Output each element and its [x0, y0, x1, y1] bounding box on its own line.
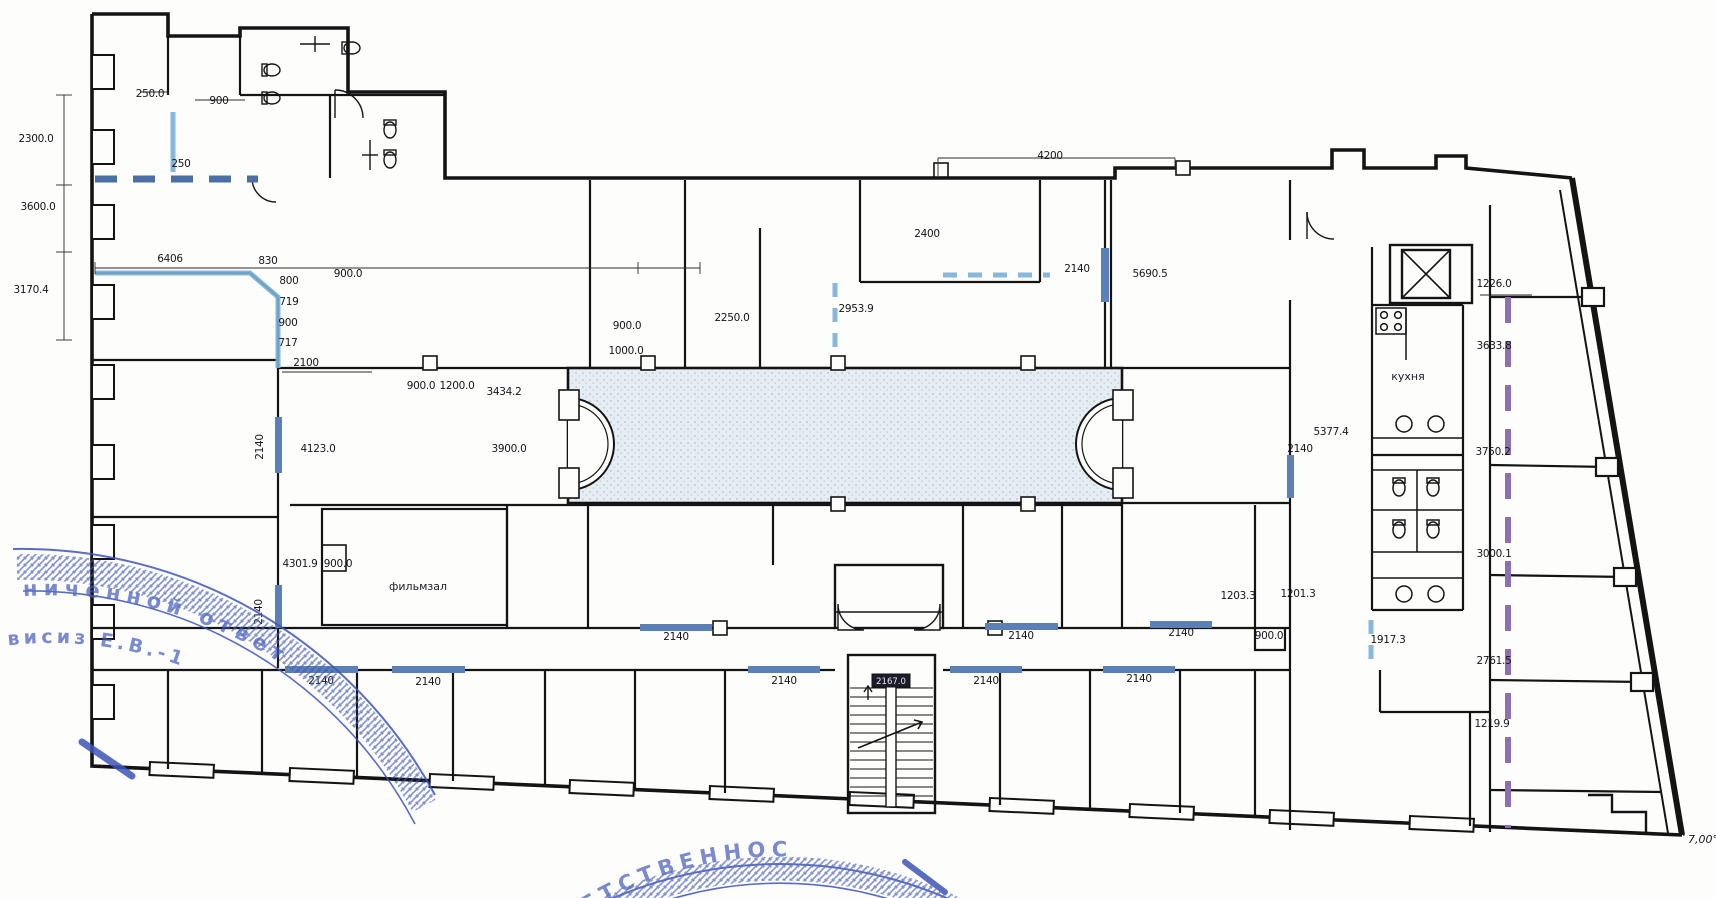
dimension-label: 1203.3: [1221, 590, 1256, 602]
window-mark: [1287, 455, 1294, 498]
dimension-label: 3170.4: [14, 284, 50, 296]
stamp-right: ОТВЕТСТВЕННОС: [440, 837, 1120, 898]
dimension-label: 3434.2: [487, 386, 522, 398]
window-mark: [1101, 248, 1109, 302]
door-arc: [838, 604, 864, 630]
dimension-label: 2140: [973, 675, 999, 687]
dimension-label: 2140: [663, 631, 689, 643]
dimension-label: 3750.2: [1476, 446, 1511, 458]
dimension-label: 2140: [415, 676, 441, 688]
stamp-left: ниченной ответ висиз Е.В.-1: [6, 549, 435, 824]
dimension-label: 250: [171, 158, 190, 170]
dimension-label: 2140: [254, 434, 266, 460]
stove-icon: [1376, 308, 1406, 334]
stamp-stroke: [82, 742, 132, 776]
dimension-label: 900.0: [1255, 630, 1284, 642]
door-arcs: [252, 90, 1334, 630]
dimension-label: 3000.1: [1477, 548, 1512, 560]
dimension-label: 900.0: [613, 320, 642, 332]
overlay-blue-walls: [95, 112, 278, 368]
window-mark: [275, 417, 282, 473]
dimension-label: 250.0: [136, 88, 165, 100]
floor-plan-svg: 2167.0: [0, 0, 1716, 898]
kitchen: [1376, 308, 1406, 360]
blue-marked-wall: [95, 273, 278, 368]
dimension-label: 2100: [293, 357, 319, 369]
dimension-label: 3600.0: [21, 201, 56, 213]
dimension-label: 717: [278, 337, 297, 349]
dimension-label: 2140: [1168, 627, 1194, 639]
dimension-label: 900: [209, 95, 228, 107]
left-wall-pilasters: [92, 55, 114, 719]
dimension-label: 1000.0: [609, 345, 644, 357]
svg-text:2167.0: 2167.0: [876, 677, 906, 687]
dimension-label: 2140: [1064, 263, 1090, 275]
window-mark: [748, 666, 820, 673]
window-mark: [275, 585, 282, 628]
dimension-label: 2250.0: [715, 312, 750, 324]
dimension-label: 900.0: [334, 268, 363, 280]
dimension-label: 2140: [1126, 673, 1152, 685]
door-arc: [1307, 212, 1334, 239]
dimension-label: 2953.9: [839, 303, 874, 315]
dimension-label: 1200.0: [440, 380, 475, 392]
dimension-label: 2761.5: [1477, 655, 1512, 667]
dimension-label: 2140: [1287, 443, 1313, 455]
dimension-label: 4301.9: [283, 558, 318, 570]
dimension-label: 800: [279, 275, 298, 287]
dimension-label: 1917.3: [1371, 634, 1406, 646]
dimension-label: 1201.3: [1281, 588, 1316, 600]
dimension-label: 1219.9: [1475, 718, 1510, 730]
dimension-label: 900.0: [407, 380, 436, 392]
stair-tag: 2167.0: [872, 674, 910, 687]
dimension-label: 4200: [1037, 150, 1063, 162]
dimension-label: 719: [279, 296, 298, 308]
window-mark: [640, 624, 712, 631]
stair-vestibule: [835, 565, 943, 628]
window-mark: [985, 623, 1058, 630]
dimension-label: 6406: [157, 253, 183, 265]
toilet-icon: [1393, 478, 1439, 538]
dimension-label: 2300.0: [19, 133, 54, 145]
dimension-label: 5690.5: [1133, 268, 1168, 280]
dimension-label: 2140: [771, 675, 797, 687]
central-hall: [559, 368, 1133, 503]
dimension-label: 3900.0: [492, 443, 527, 455]
svg-text:7,00°: 7,00°: [1688, 833, 1716, 846]
elevator: [1390, 245, 1472, 303]
window-mark: [950, 666, 1022, 673]
film-hall-label: фильмзал: [389, 580, 447, 593]
stairs: [835, 565, 943, 813]
dimension-label: 900: [278, 317, 297, 329]
dimension-label: 3633.8: [1477, 340, 1512, 352]
dimension-label: 1226.0: [1477, 278, 1512, 290]
dimension-label: 2140: [1008, 630, 1034, 642]
sanitary-block: [1372, 416, 1463, 602]
window-mark: [392, 666, 465, 673]
svg-text:висиз Е.В.-1: висиз Е.В.-1: [6, 626, 189, 671]
door-arc: [914, 604, 940, 630]
dimension-label: 900.0: [324, 558, 353, 570]
dimension-label: 2400: [914, 228, 940, 240]
dimension-label: 4123.0: [301, 443, 336, 455]
kitchen-label: кухня: [1391, 370, 1424, 383]
window-mark: [1103, 666, 1175, 673]
dimension-label: 5377.4: [1314, 426, 1350, 438]
dimension-label: 830: [258, 255, 277, 267]
floor-plan-canvas: 2167.0: [0, 0, 1716, 898]
